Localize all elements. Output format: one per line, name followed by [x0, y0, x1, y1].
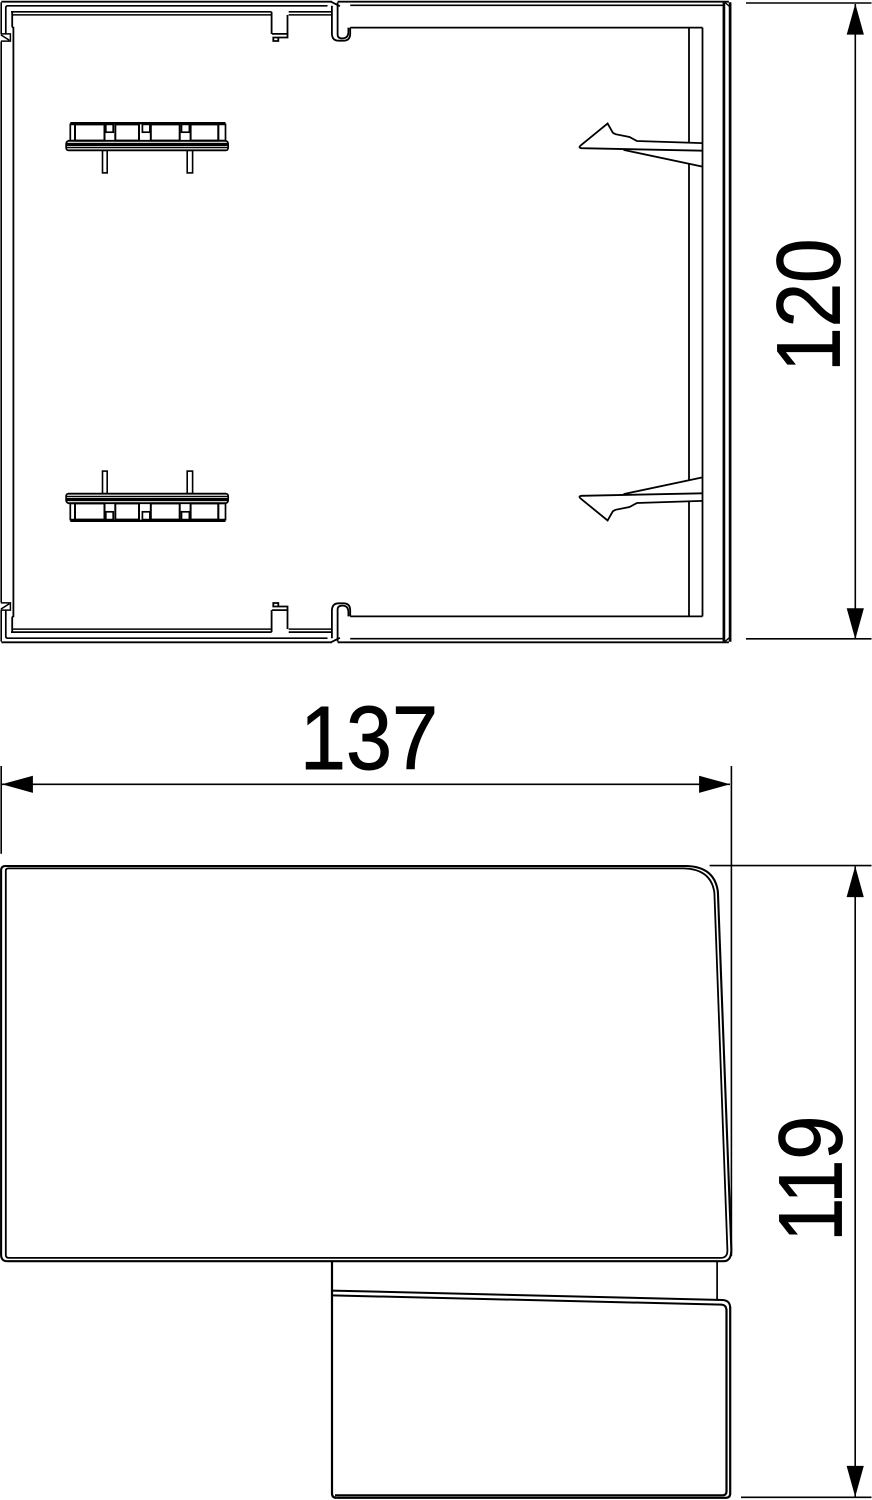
svg-text:137: 137 — [300, 689, 438, 789]
svg-text:119: 119 — [761, 1116, 861, 1242]
svg-text:120: 120 — [760, 239, 860, 372]
